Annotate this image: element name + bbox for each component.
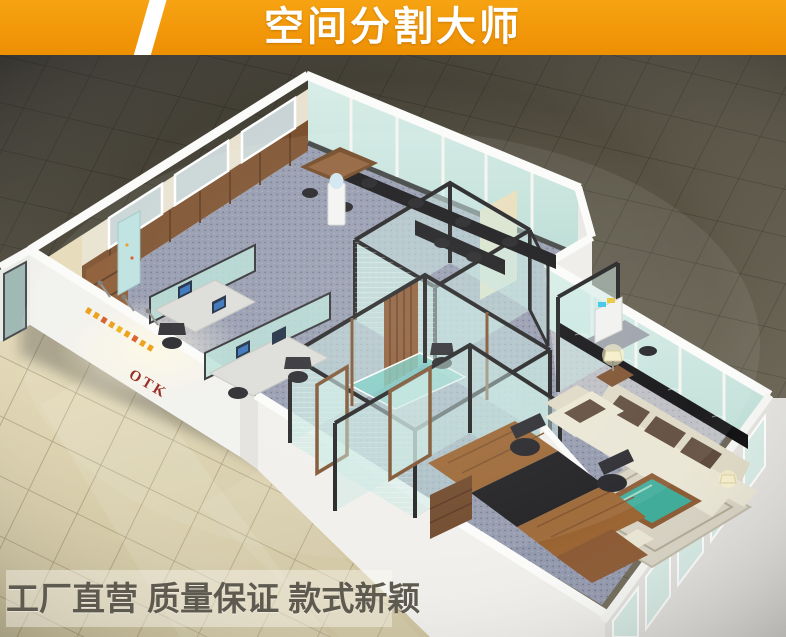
banner-title: 空间分割大师 bbox=[0, 0, 786, 55]
footer-slogan: 工厂直营 质量保证 款式新颖 bbox=[6, 570, 392, 627]
lighting-overlay bbox=[0, 55, 786, 637]
office-render-image: OTK bbox=[0, 55, 786, 637]
banner: 空间分割大师 bbox=[0, 0, 786, 55]
